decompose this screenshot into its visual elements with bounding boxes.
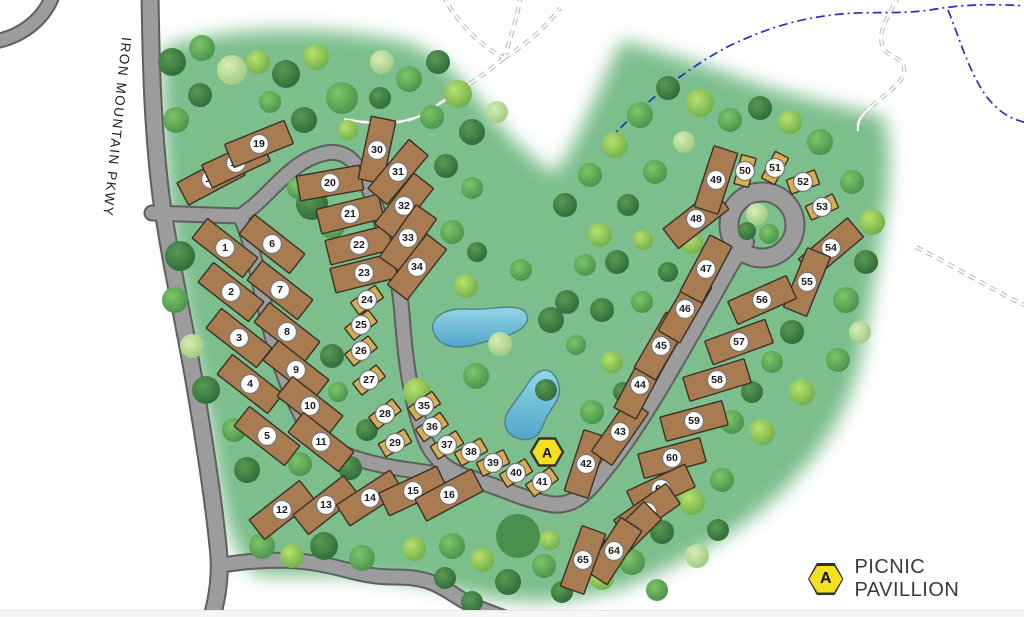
- site-number: 33: [402, 232, 414, 244]
- tree: [280, 544, 304, 568]
- tree: [320, 344, 344, 368]
- site-number: 57: [733, 336, 745, 348]
- site-number: 24: [361, 294, 373, 306]
- tree: [496, 514, 540, 558]
- tree: [328, 382, 348, 402]
- site-number: 5: [264, 430, 270, 442]
- tree: [532, 554, 556, 578]
- tree: [444, 80, 472, 108]
- tree: [826, 348, 850, 372]
- tree: [849, 321, 871, 343]
- tree: [459, 119, 485, 145]
- site-number: 20: [324, 177, 336, 189]
- tree: [555, 290, 579, 314]
- site-number: 41: [536, 476, 548, 488]
- tree: [461, 177, 483, 199]
- site-number: 65: [577, 554, 589, 566]
- site-number: 8: [284, 326, 290, 338]
- site-number: 11: [315, 436, 326, 448]
- tree: [833, 287, 859, 313]
- tree: [710, 468, 734, 492]
- site-number: 45: [655, 340, 667, 352]
- site-number: 48: [690, 213, 702, 225]
- tree: [495, 569, 521, 595]
- legend-label: PICNIC PAVILLION: [854, 556, 1024, 602]
- site-number: 12: [276, 504, 288, 516]
- tree: [778, 110, 802, 134]
- site-number: 19: [253, 138, 265, 150]
- tree: [780, 320, 804, 344]
- site-number: 60: [666, 452, 678, 464]
- tree: [510, 259, 532, 281]
- site-number: 56: [756, 294, 768, 306]
- tree: [673, 131, 695, 153]
- tree: [303, 44, 329, 70]
- tree: [165, 241, 195, 271]
- tree: [369, 87, 391, 109]
- tree: [158, 48, 186, 76]
- tree: [162, 287, 188, 313]
- tree: [761, 351, 783, 373]
- tree: [685, 544, 709, 568]
- tree: [434, 567, 456, 589]
- tree: [627, 102, 653, 128]
- tree: [617, 194, 639, 216]
- site-number: 2: [228, 286, 234, 298]
- site-number: 40: [510, 467, 522, 479]
- tree: [840, 170, 864, 194]
- tree: [553, 193, 577, 217]
- tree: [646, 579, 668, 601]
- site-number: 22: [353, 239, 365, 251]
- tree: [310, 532, 338, 560]
- site-number: 47: [700, 263, 712, 275]
- site-number: 38: [465, 446, 477, 458]
- site-number: 27: [363, 374, 375, 386]
- site-number: 30: [371, 144, 383, 156]
- site-number: 52: [797, 176, 809, 188]
- site-number: 46: [679, 303, 691, 315]
- tree: [574, 254, 596, 276]
- tree: [631, 291, 653, 313]
- map-image: 1234567891011121314151617181920212223242…: [0, 0, 1024, 617]
- tree: [470, 548, 494, 572]
- tree: [854, 250, 878, 274]
- tree: [746, 203, 768, 225]
- tree: [590, 298, 614, 322]
- tree: [291, 107, 317, 133]
- tree: [180, 334, 204, 358]
- site-number: 4: [247, 378, 253, 390]
- site-number: 21: [344, 208, 356, 220]
- tree: [738, 222, 756, 240]
- site-number: 44: [634, 379, 646, 391]
- tree: [486, 101, 508, 123]
- bottom-edge-band: [0, 610, 1024, 617]
- site-number: 43: [614, 426, 626, 438]
- tree: [338, 120, 358, 140]
- tree: [749, 419, 775, 445]
- tree: [535, 379, 557, 401]
- tree: [601, 351, 623, 373]
- tree: [578, 163, 602, 187]
- site-number: 32: [398, 200, 410, 212]
- tree: [707, 519, 729, 541]
- site-number: 14: [364, 492, 376, 504]
- site-number: 13: [320, 499, 332, 511]
- tree: [420, 105, 444, 129]
- tree: [759, 224, 779, 244]
- tree: [396, 66, 422, 92]
- tree: [540, 530, 560, 550]
- campground-map: 1234567891011121314151617181920212223242…: [0, 0, 1024, 617]
- site-number: 51: [769, 162, 781, 174]
- tree: [189, 35, 215, 61]
- tree: [656, 76, 680, 100]
- tree: [454, 274, 478, 298]
- tree: [440, 220, 464, 244]
- site-number: 64: [608, 545, 620, 557]
- site-number: 36: [426, 421, 438, 433]
- site-number: 26: [355, 345, 367, 357]
- tree: [807, 129, 833, 155]
- tree: [426, 50, 450, 74]
- tree: [658, 262, 678, 282]
- tree: [217, 55, 247, 85]
- site-number: 3: [236, 332, 242, 344]
- site-number: 35: [418, 400, 430, 412]
- site-number: 39: [487, 457, 499, 469]
- site-number: 53: [816, 201, 828, 213]
- site-number: 34: [411, 261, 423, 273]
- site-number: 28: [379, 408, 391, 420]
- tree: [326, 82, 358, 114]
- legend: A PICNIC PAVILLION: [808, 556, 1024, 602]
- tree: [789, 379, 815, 405]
- tree: [602, 132, 628, 158]
- tree: [259, 91, 281, 113]
- site-number: 58: [711, 374, 723, 386]
- pavilion-hexagon-icon: A: [808, 563, 843, 595]
- picnic-pavilion-marker: A: [531, 439, 563, 466]
- tree: [718, 108, 742, 132]
- site-number: 6: [269, 238, 275, 250]
- site-number: 49: [710, 174, 722, 186]
- site-number: 29: [389, 437, 401, 449]
- tree: [272, 60, 300, 88]
- site-number: 9: [293, 364, 299, 376]
- tree: [467, 242, 487, 262]
- site-number: 1: [222, 242, 228, 254]
- tree: [686, 89, 714, 117]
- site-number: 15: [407, 485, 419, 497]
- tree: [188, 83, 212, 107]
- site-number: 55: [801, 276, 813, 288]
- tree: [434, 154, 458, 178]
- site-number: 37: [441, 439, 453, 451]
- site-number: 10: [304, 400, 316, 412]
- tree: [402, 537, 426, 561]
- site-number: 42: [580, 458, 592, 470]
- tree: [349, 545, 375, 571]
- site-number: 7: [277, 284, 283, 296]
- tree: [488, 332, 512, 356]
- site-number: 25: [355, 319, 367, 331]
- site-number: 50: [739, 165, 751, 177]
- tree: [234, 457, 260, 483]
- tree: [566, 335, 586, 355]
- site-number: 16: [443, 489, 455, 501]
- site-number: 31: [392, 166, 404, 178]
- tree: [246, 50, 270, 74]
- site-number: 54: [825, 242, 837, 254]
- tree: [163, 107, 189, 133]
- tree: [370, 50, 394, 74]
- tree: [580, 400, 604, 424]
- tree: [748, 96, 772, 120]
- tree: [643, 160, 667, 184]
- tree: [463, 363, 489, 389]
- site-number: 59: [688, 415, 700, 427]
- tree: [633, 230, 653, 250]
- tree: [588, 223, 612, 247]
- tree: [605, 250, 629, 274]
- tree: [439, 533, 465, 559]
- site-number: 23: [358, 267, 370, 279]
- tree: [192, 376, 220, 404]
- marker-letter: A: [542, 445, 552, 461]
- tree: [859, 209, 885, 235]
